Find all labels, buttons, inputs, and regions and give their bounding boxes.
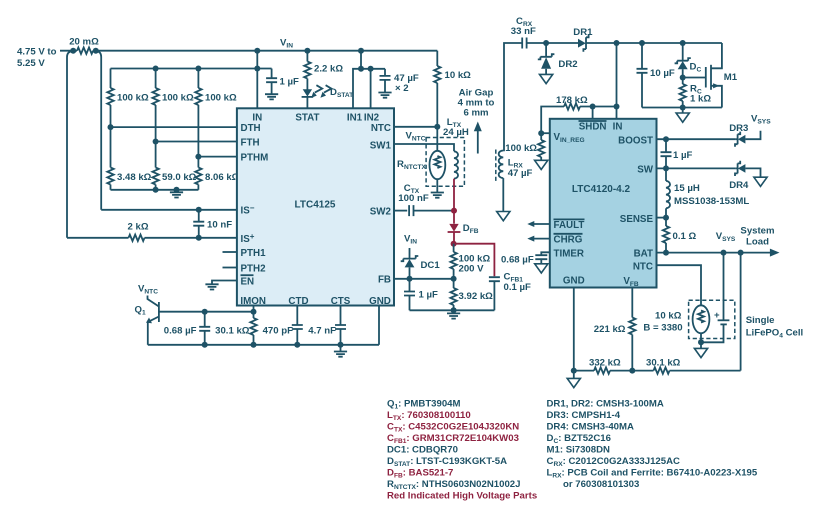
svg-text:CFB1: GRM31CR72E104KW03: CFB1: GRM31CR72E104KW03 bbox=[387, 433, 519, 445]
svg-text:CTD: CTD bbox=[288, 296, 308, 307]
svg-text:3.92 kΩ: 3.92 kΩ bbox=[459, 291, 494, 302]
svg-text:24 µH: 24 µH bbox=[443, 127, 469, 138]
svg-text:PTH1: PTH1 bbox=[241, 248, 267, 259]
svg-text:2 kΩ: 2 kΩ bbox=[127, 222, 148, 233]
svg-text:IMON: IMON bbox=[240, 296, 266, 307]
svg-text:4.7 nF: 4.7 nF bbox=[308, 326, 336, 337]
svg-text:LTC4125: LTC4125 bbox=[295, 199, 336, 210]
svg-text:332 kΩ: 332 kΩ bbox=[589, 358, 621, 369]
svg-text:CHRG: CHRG bbox=[554, 235, 583, 246]
svg-text:IN2: IN2 bbox=[364, 112, 380, 123]
svg-text:DC1: DC1 bbox=[421, 260, 441, 271]
svg-text:MSS1038-153ML: MSS1038-153ML bbox=[674, 196, 749, 207]
svg-text:SW2: SW2 bbox=[370, 206, 392, 217]
svg-text:DR3: CMPSH1-4: DR3: CMPSH1-4 bbox=[547, 410, 621, 421]
svg-text:IN1: IN1 bbox=[347, 112, 363, 123]
svg-text:2.2 kΩ: 2.2 kΩ bbox=[314, 63, 343, 74]
svg-text:47 µF: 47 µF bbox=[508, 168, 533, 179]
svg-text:30.1 kΩ: 30.1 kΩ bbox=[215, 326, 250, 337]
svg-text:DR1, DR2: CMSH3-100MA: DR1, DR2: CMSH3-100MA bbox=[547, 399, 664, 410]
svg-text:0.68 µF: 0.68 µF bbox=[164, 326, 197, 337]
svg-text:100 kΩ: 100 kΩ bbox=[162, 93, 194, 104]
svg-text:NTC: NTC bbox=[371, 123, 391, 134]
svg-text:178 kΩ: 178 kΩ bbox=[556, 95, 588, 106]
svg-text:FTH: FTH bbox=[241, 137, 260, 148]
svg-text:100 kΩ: 100 kΩ bbox=[205, 93, 237, 104]
svg-text:× 2: × 2 bbox=[395, 83, 409, 94]
svg-text:GND: GND bbox=[563, 276, 585, 287]
svg-text:CTX: C4532C0G2E104J320KN: CTX: C4532C0G2E104J320KN bbox=[387, 422, 519, 434]
svg-text:CTS: CTS bbox=[331, 296, 351, 307]
svg-text:1 µF: 1 µF bbox=[419, 289, 439, 300]
svg-text:IN: IN bbox=[252, 112, 262, 123]
svg-text:200 V: 200 V bbox=[459, 263, 485, 274]
svg-text:0.68 µF: 0.68 µF bbox=[501, 254, 534, 265]
svg-text:GND: GND bbox=[369, 296, 391, 307]
svg-text:1 µF: 1 µF bbox=[673, 150, 693, 161]
svg-text:4.75 V to: 4.75 V to bbox=[17, 47, 57, 58]
svg-text:BOOST: BOOST bbox=[618, 135, 653, 146]
svg-text:0.1 µF: 0.1 µF bbox=[504, 282, 532, 293]
svg-text:1 kΩ: 1 kΩ bbox=[690, 93, 711, 104]
svg-text:BAT: BAT bbox=[634, 249, 653, 260]
svg-text:100 kΩ: 100 kΩ bbox=[117, 93, 149, 104]
svg-text:8.06 kΩ: 8.06 kΩ bbox=[205, 172, 240, 183]
svg-text:CRX: C2012C0G2A333J125AC: CRX: C2012C0G2A333J125AC bbox=[547, 456, 681, 468]
svg-text:Red Indicated High Voltage Par: Red Indicated High Voltage Parts bbox=[387, 491, 537, 502]
svg-text:+: + bbox=[714, 310, 720, 321]
svg-text:59.0 kΩ: 59.0 kΩ bbox=[162, 172, 197, 183]
svg-text:5.25 V: 5.25 V bbox=[17, 58, 45, 69]
svg-text:SHDN: SHDN bbox=[579, 122, 607, 133]
svg-text:FAULT: FAULT bbox=[554, 220, 585, 231]
svg-text:DR2: DR2 bbox=[558, 59, 577, 70]
svg-text:System: System bbox=[740, 226, 774, 237]
svg-text:NTC: NTC bbox=[633, 261, 653, 272]
svg-text:6 mm: 6 mm bbox=[463, 108, 488, 119]
svg-text:Single: Single bbox=[746, 315, 775, 326]
svg-text:SW1: SW1 bbox=[370, 140, 392, 151]
svg-text:FB: FB bbox=[378, 274, 391, 285]
svg-text:LTC4120-4.2: LTC4120-4.2 bbox=[572, 184, 631, 195]
svg-text:IN: IN bbox=[613, 122, 623, 133]
svg-text:Q1: PMBT3904M: Q1: PMBT3904M bbox=[387, 399, 461, 411]
svg-text:20 mΩ: 20 mΩ bbox=[69, 37, 99, 48]
svg-text:M1: Si7308DN: M1: Si7308DN bbox=[547, 445, 611, 456]
svg-text:Load: Load bbox=[746, 237, 769, 248]
svg-text:or 760308101303: or 760308101303 bbox=[563, 479, 639, 490]
svg-text:15 µH: 15 µH bbox=[674, 183, 700, 194]
svg-text:TIMER: TIMER bbox=[554, 248, 584, 259]
svg-text:DC1: CDBQR70: DC1: CDBQR70 bbox=[387, 445, 458, 456]
svg-text:B = 3380: B = 3380 bbox=[643, 323, 682, 334]
svg-text:30.1 kΩ: 30.1 kΩ bbox=[646, 358, 681, 369]
svg-text:3.48 kΩ: 3.48 kΩ bbox=[117, 172, 152, 183]
svg-text:10 µF: 10 µF bbox=[650, 68, 675, 79]
svg-text:LRX: PCB Coil and Ferrite: B67: LRX: PCB Coil and Ferrite: B67410-A0223-… bbox=[547, 468, 758, 480]
svg-text:SENSE: SENSE bbox=[620, 214, 654, 225]
svg-text:DTH: DTH bbox=[241, 123, 261, 134]
svg-text:221 kΩ: 221 kΩ bbox=[594, 324, 626, 335]
svg-text:STAT: STAT bbox=[295, 112, 319, 123]
svg-text:DR4: DR4 bbox=[729, 180, 749, 191]
svg-text:470 pF: 470 pF bbox=[263, 326, 294, 337]
svg-text:10 kΩ: 10 kΩ bbox=[655, 310, 682, 321]
svg-text:SW: SW bbox=[637, 165, 654, 176]
svg-text:M1: M1 bbox=[724, 72, 738, 83]
svg-text:LiFePO4 Cell: LiFePO4 Cell bbox=[746, 327, 804, 339]
svg-text:0.1 Ω: 0.1 Ω bbox=[673, 231, 697, 242]
svg-text:PTH2: PTH2 bbox=[241, 263, 267, 274]
svg-text:DR1: DR1 bbox=[573, 27, 593, 38]
svg-text:EN: EN bbox=[241, 276, 255, 287]
svg-text:DR4: CMSH3-40MA: DR4: CMSH3-40MA bbox=[547, 422, 634, 433]
svg-text:100 nF: 100 nF bbox=[398, 193, 429, 204]
svg-text:10 kΩ: 10 kΩ bbox=[445, 70, 472, 81]
svg-text:DR3: DR3 bbox=[729, 123, 748, 134]
svg-text:1 µF: 1 µF bbox=[280, 76, 300, 87]
svg-text:100 kΩ: 100 kΩ bbox=[505, 143, 537, 154]
svg-text:PTHM: PTHM bbox=[241, 153, 269, 164]
svg-text:10 nF: 10 nF bbox=[207, 220, 232, 231]
svg-text:33 nF: 33 nF bbox=[511, 26, 536, 37]
